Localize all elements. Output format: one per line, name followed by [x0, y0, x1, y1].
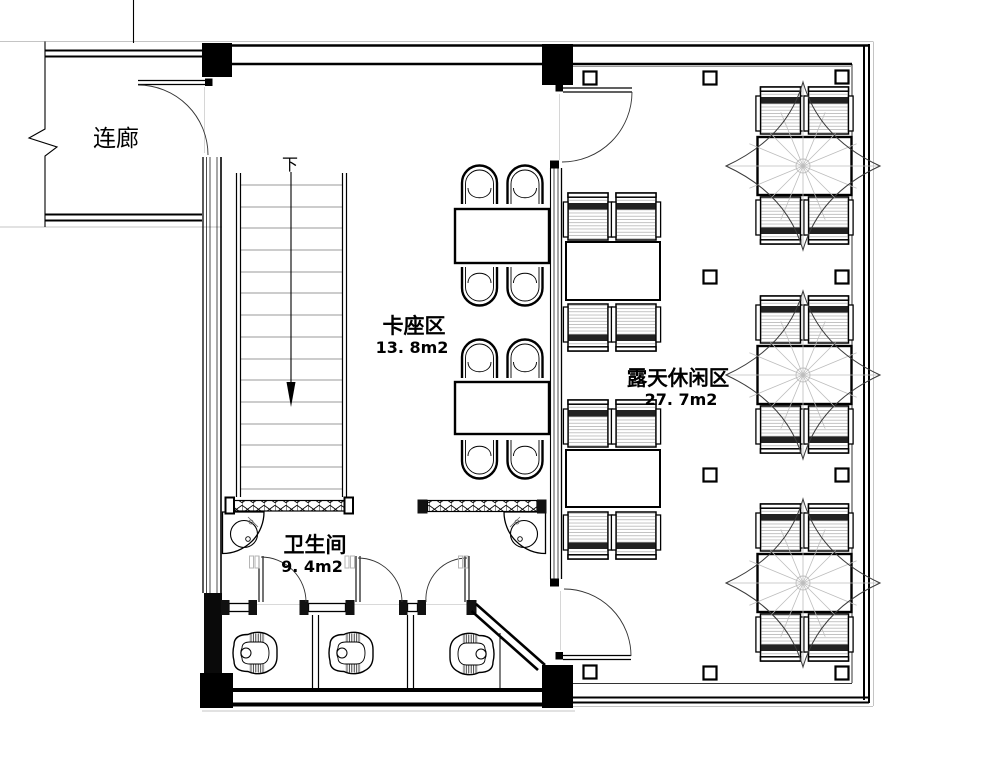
- column: [542, 44, 573, 85]
- glass-partition: [551, 168, 562, 579]
- deck-chair: [563, 512, 612, 559]
- deck-chair: [804, 406, 853, 453]
- booth-seating: [455, 166, 549, 479]
- deck-post: [836, 469, 849, 482]
- floor-plan: 连廊 下 卡座区 13. 8m2 露天休闲区 27. 7m2 卫生间 9. 4m…: [0, 0, 1000, 769]
- left-wall-solid: [204, 593, 222, 673]
- deck-chair: [804, 504, 853, 551]
- parasol-icon: [726, 82, 880, 250]
- stall-front-wall: [221, 600, 477, 615]
- booth-chair: [462, 166, 497, 205]
- railing-stair-base: [226, 498, 354, 514]
- parasol-icon: [726, 499, 880, 667]
- deck-dining-set-1: [563, 193, 660, 351]
- deck-post: [584, 666, 597, 679]
- parasol-icon: [726, 291, 880, 459]
- column: [200, 673, 233, 708]
- deck-chair: [804, 296, 853, 343]
- column: [202, 43, 232, 77]
- corridor-walls: [29, 0, 202, 227]
- door-swing-arc: [564, 589, 631, 656]
- corner-sink-right: [504, 512, 546, 554]
- stall-door-2: [345, 556, 402, 602]
- deck-chair: [563, 400, 612, 447]
- booth-table: [455, 382, 549, 434]
- deck-chair: [756, 197, 805, 244]
- door-swing-arc: [138, 85, 208, 155]
- floor-plan-svg: 连廊 下 卡座区 13. 8m2 露天休闲区 27. 7m2 卫生间 9. 4m…: [0, 0, 1000, 769]
- deck-table: [566, 450, 660, 507]
- booth-chair: [508, 267, 543, 306]
- stall-door-3: [426, 556, 469, 602]
- squat-toilet: [450, 633, 494, 674]
- deck-door-bottom: [556, 589, 632, 660]
- deck-post: [704, 667, 717, 680]
- squat-toilet: [233, 632, 277, 673]
- door-hinge-block: [205, 79, 213, 87]
- deck-post: [836, 271, 849, 284]
- deck-table: [566, 242, 660, 300]
- deck-chair: [611, 512, 660, 559]
- deck-chair: [804, 197, 853, 244]
- deck-post: [836, 667, 849, 680]
- umbrella-set-3: [726, 499, 880, 667]
- partition-end-block-bottom: [550, 579, 559, 587]
- deck-chair: [756, 87, 805, 134]
- left-wall-window: [203, 157, 221, 593]
- deck-post: [584, 72, 597, 85]
- booth-area-label: 卡座区: [383, 314, 446, 338]
- corner-sink-left: [223, 512, 265, 554]
- deck-chair: [563, 304, 612, 351]
- deck-dining-set-2: [563, 400, 660, 559]
- outdoor-area-label: 露天休闲区: [627, 366, 730, 390]
- booth-chair: [462, 340, 497, 379]
- break-line: [29, 42, 57, 228]
- deck-chair: [756, 406, 805, 453]
- deck-chair: [804, 614, 853, 661]
- column: [542, 665, 573, 708]
- booth-chair: [508, 166, 543, 205]
- door-hinge-block: [556, 652, 564, 660]
- stairs: [237, 172, 347, 497]
- booth-chair: [462, 440, 497, 479]
- deck-post: [704, 72, 717, 85]
- deck-post: [704, 271, 717, 284]
- umbrella-set-2: [726, 291, 880, 459]
- door-swing-arc: [426, 558, 467, 602]
- door-hinge-block: [556, 84, 564, 92]
- restroom-size: 9. 4m2: [281, 557, 343, 576]
- corridor-entry-door: [138, 79, 213, 156]
- door-swing-arc: [562, 92, 632, 162]
- booth-chair: [508, 440, 543, 479]
- deck-post: [836, 71, 849, 84]
- corridor-label: 连廊: [93, 126, 139, 152]
- stairs-down-label: 下: [282, 155, 298, 174]
- deck-chair: [611, 193, 660, 240]
- deck-post: [704, 469, 717, 482]
- outdoor-area-size: 27. 7m2: [645, 390, 718, 409]
- umbrella-set-1: [726, 82, 880, 250]
- deck-chair: [804, 87, 853, 134]
- booth-table: [455, 209, 549, 263]
- railing-restroom: [418, 500, 547, 514]
- deck-chair: [756, 504, 805, 551]
- booth-chair: [508, 340, 543, 379]
- deck-chair: [611, 304, 660, 351]
- door-swing-arc: [358, 558, 402, 602]
- restroom-label: 卫生间: [284, 533, 347, 557]
- booth-area-size: 13. 8m2: [376, 338, 449, 357]
- deck-chair: [756, 614, 805, 661]
- deck-chair: [756, 296, 805, 343]
- deck-door-top: [556, 84, 633, 162]
- stair-direction-arrow: [287, 382, 296, 407]
- squat-toilet: [329, 632, 373, 673]
- booth-chair: [462, 267, 497, 306]
- partition-end-block-top: [550, 161, 559, 169]
- deck-chair: [563, 193, 612, 240]
